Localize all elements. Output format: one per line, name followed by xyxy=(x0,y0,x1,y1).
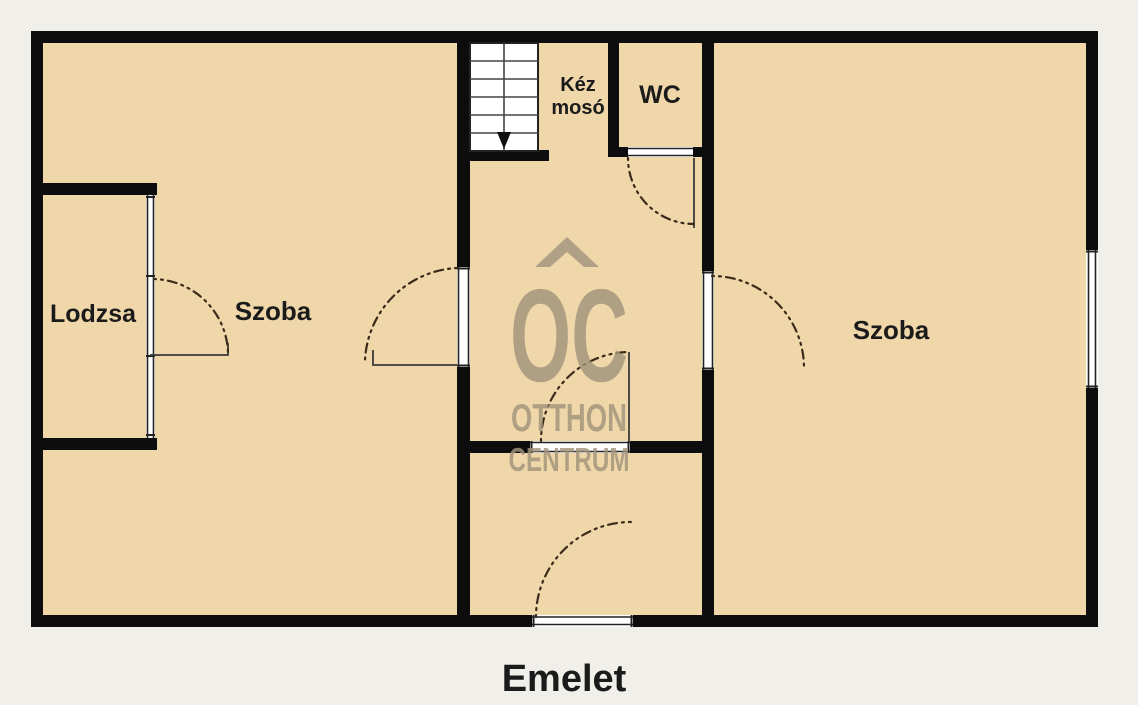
wall-lodzsa-top xyxy=(31,183,157,195)
wall-outer-left xyxy=(31,31,43,627)
wall-hall-left-upper xyxy=(457,43,470,267)
floor-title: Emelet xyxy=(502,658,627,700)
wall-outer-bottom-left xyxy=(31,615,532,627)
room-label-kezmoso-line1: Kéz xyxy=(560,74,596,96)
wall-outer-right-upper xyxy=(1086,31,1098,250)
wall-wc-door-cap-left xyxy=(619,147,628,157)
watermark-otthon: OTTHON xyxy=(511,397,627,440)
room-label-wc: WC xyxy=(639,81,681,109)
window-lodzsa-wall xyxy=(146,195,155,438)
watermark-centrum: CENTRUM xyxy=(509,441,630,478)
window-right-wall xyxy=(1086,250,1098,388)
wall-wc-door-cap-right xyxy=(693,147,702,157)
watermark-oc: OC xyxy=(510,262,628,409)
wall-hall-left-lower xyxy=(457,367,470,615)
wall-hall-bottom-right xyxy=(630,441,702,453)
wall-outer-right-lower xyxy=(1086,388,1098,627)
wall-outer-top xyxy=(31,31,1098,43)
wall-right-room-upper xyxy=(702,43,714,271)
watermark-logo: OC OTTHON CENTRUM xyxy=(509,237,630,478)
room-label-kezmoso-line2: mosó xyxy=(551,97,604,119)
wall-outer-bottom-right xyxy=(633,615,1098,627)
wall-wc-divider xyxy=(608,43,619,157)
room-label-szoba-right: Szoba xyxy=(853,315,930,345)
room-label-lodzsa: Lodzsa xyxy=(50,300,137,328)
staircase xyxy=(470,43,538,151)
wall-lodzsa-bottom xyxy=(31,438,157,450)
floor-plan-svg: Lodzsa Szoba Szoba WC Kéz mosó OC OTTHON… xyxy=(0,0,1138,705)
room-label-szoba-left: Szoba xyxy=(235,296,312,326)
wall-right-room-lower xyxy=(702,370,714,615)
floor-plan-page: Lodzsa Szoba Szoba WC Kéz mosó OC OTTHON… xyxy=(0,0,1138,705)
